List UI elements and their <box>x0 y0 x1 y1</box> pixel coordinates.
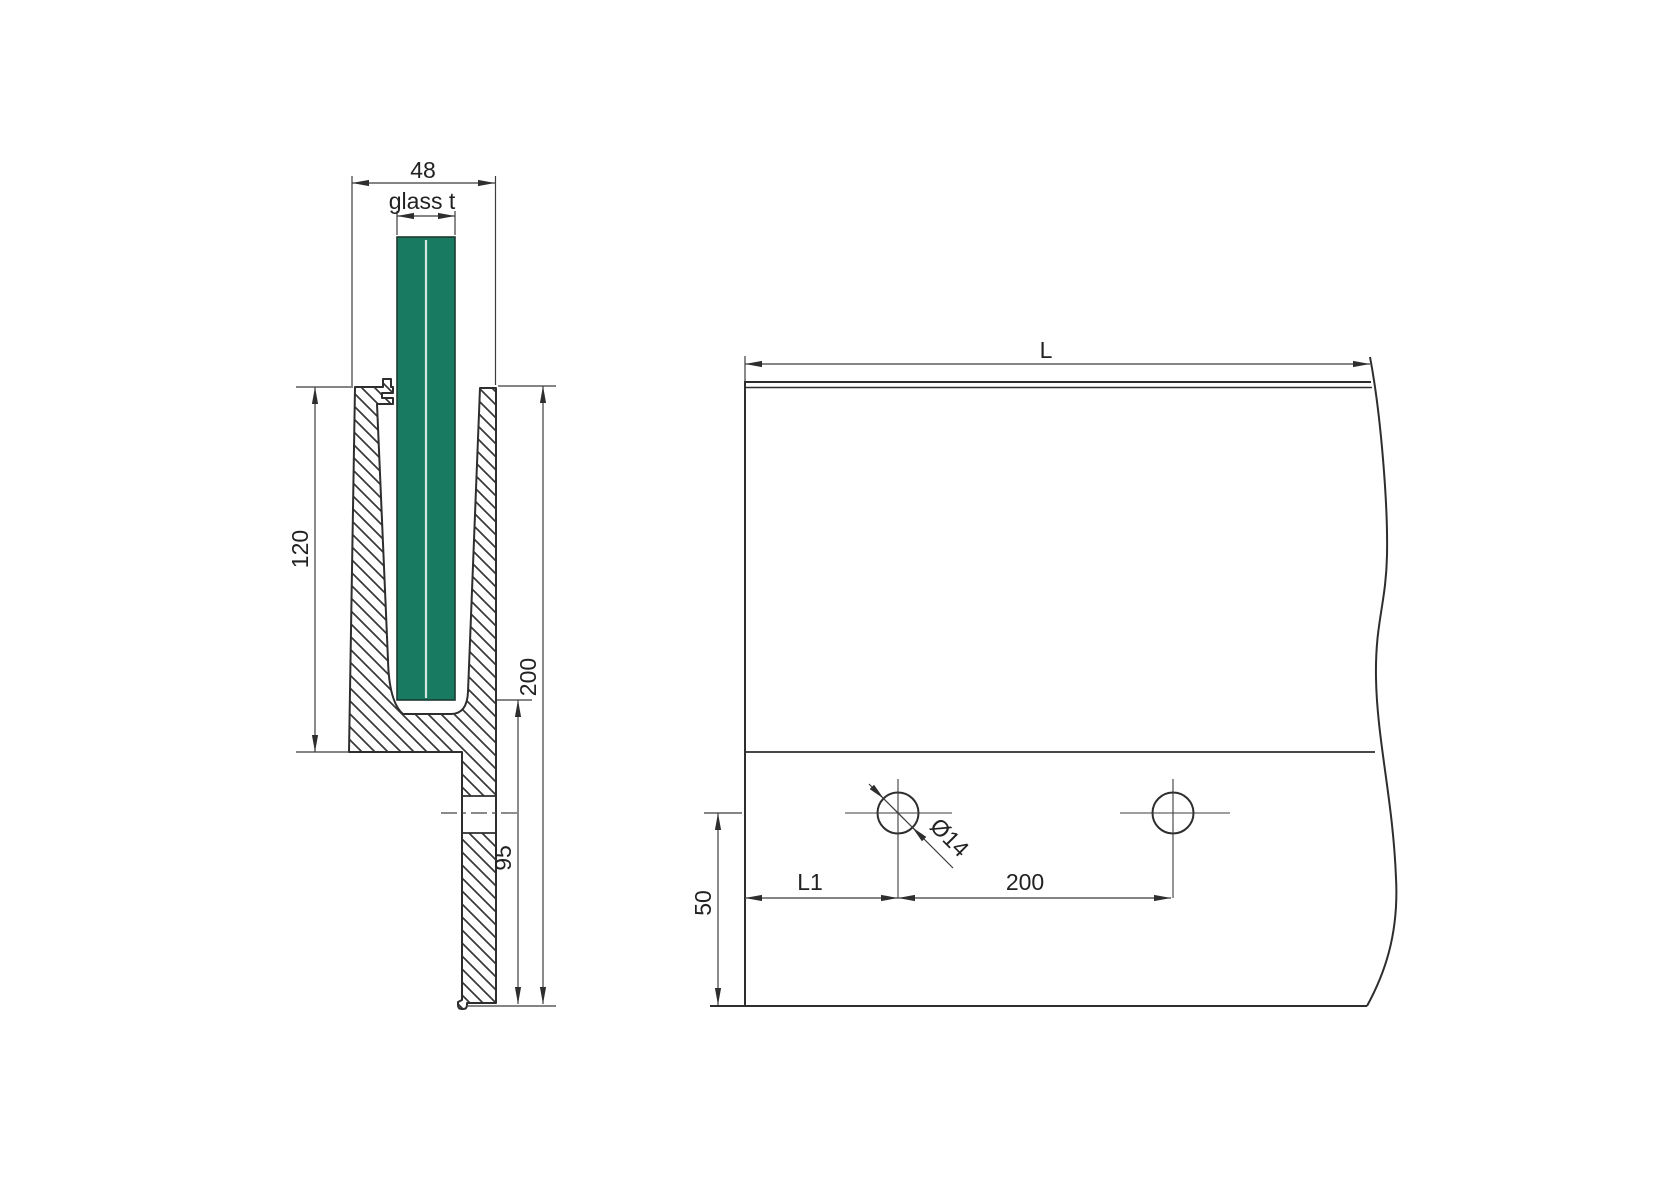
dim-glass-thickness <box>397 211 455 235</box>
section-view: 48 glass t 120 95 200 <box>287 157 556 1009</box>
dim-hole-spacing-200-label: 200 <box>1006 869 1044 895</box>
dim-height-200-label: 200 <box>515 658 541 696</box>
technical-drawing: 48 glass t 120 95 200 <box>0 0 1680 1187</box>
dim-depth-120-label: 120 <box>287 530 313 568</box>
dim-length-L-label: L <box>1040 337 1053 363</box>
dim-length-L <box>745 356 1370 381</box>
dim-depth-120 <box>296 387 353 752</box>
dim-hole-diameter-label: Ø14 <box>925 813 974 862</box>
break-line <box>1367 357 1396 1006</box>
fixing-hole-band <box>463 796 495 833</box>
elevation-view: L L1 200 50 Ø14 <box>690 337 1396 1006</box>
technical-drawing-page: 48 glass t 120 95 200 <box>0 0 1680 1187</box>
dim-width-48-label: 48 <box>410 157 436 183</box>
dim-glass-thickness-label: glass t <box>389 188 456 214</box>
dim-L1-label: L1 <box>797 869 823 895</box>
dim-95-label: 95 <box>490 845 516 871</box>
dim-50-label: 50 <box>690 890 716 916</box>
